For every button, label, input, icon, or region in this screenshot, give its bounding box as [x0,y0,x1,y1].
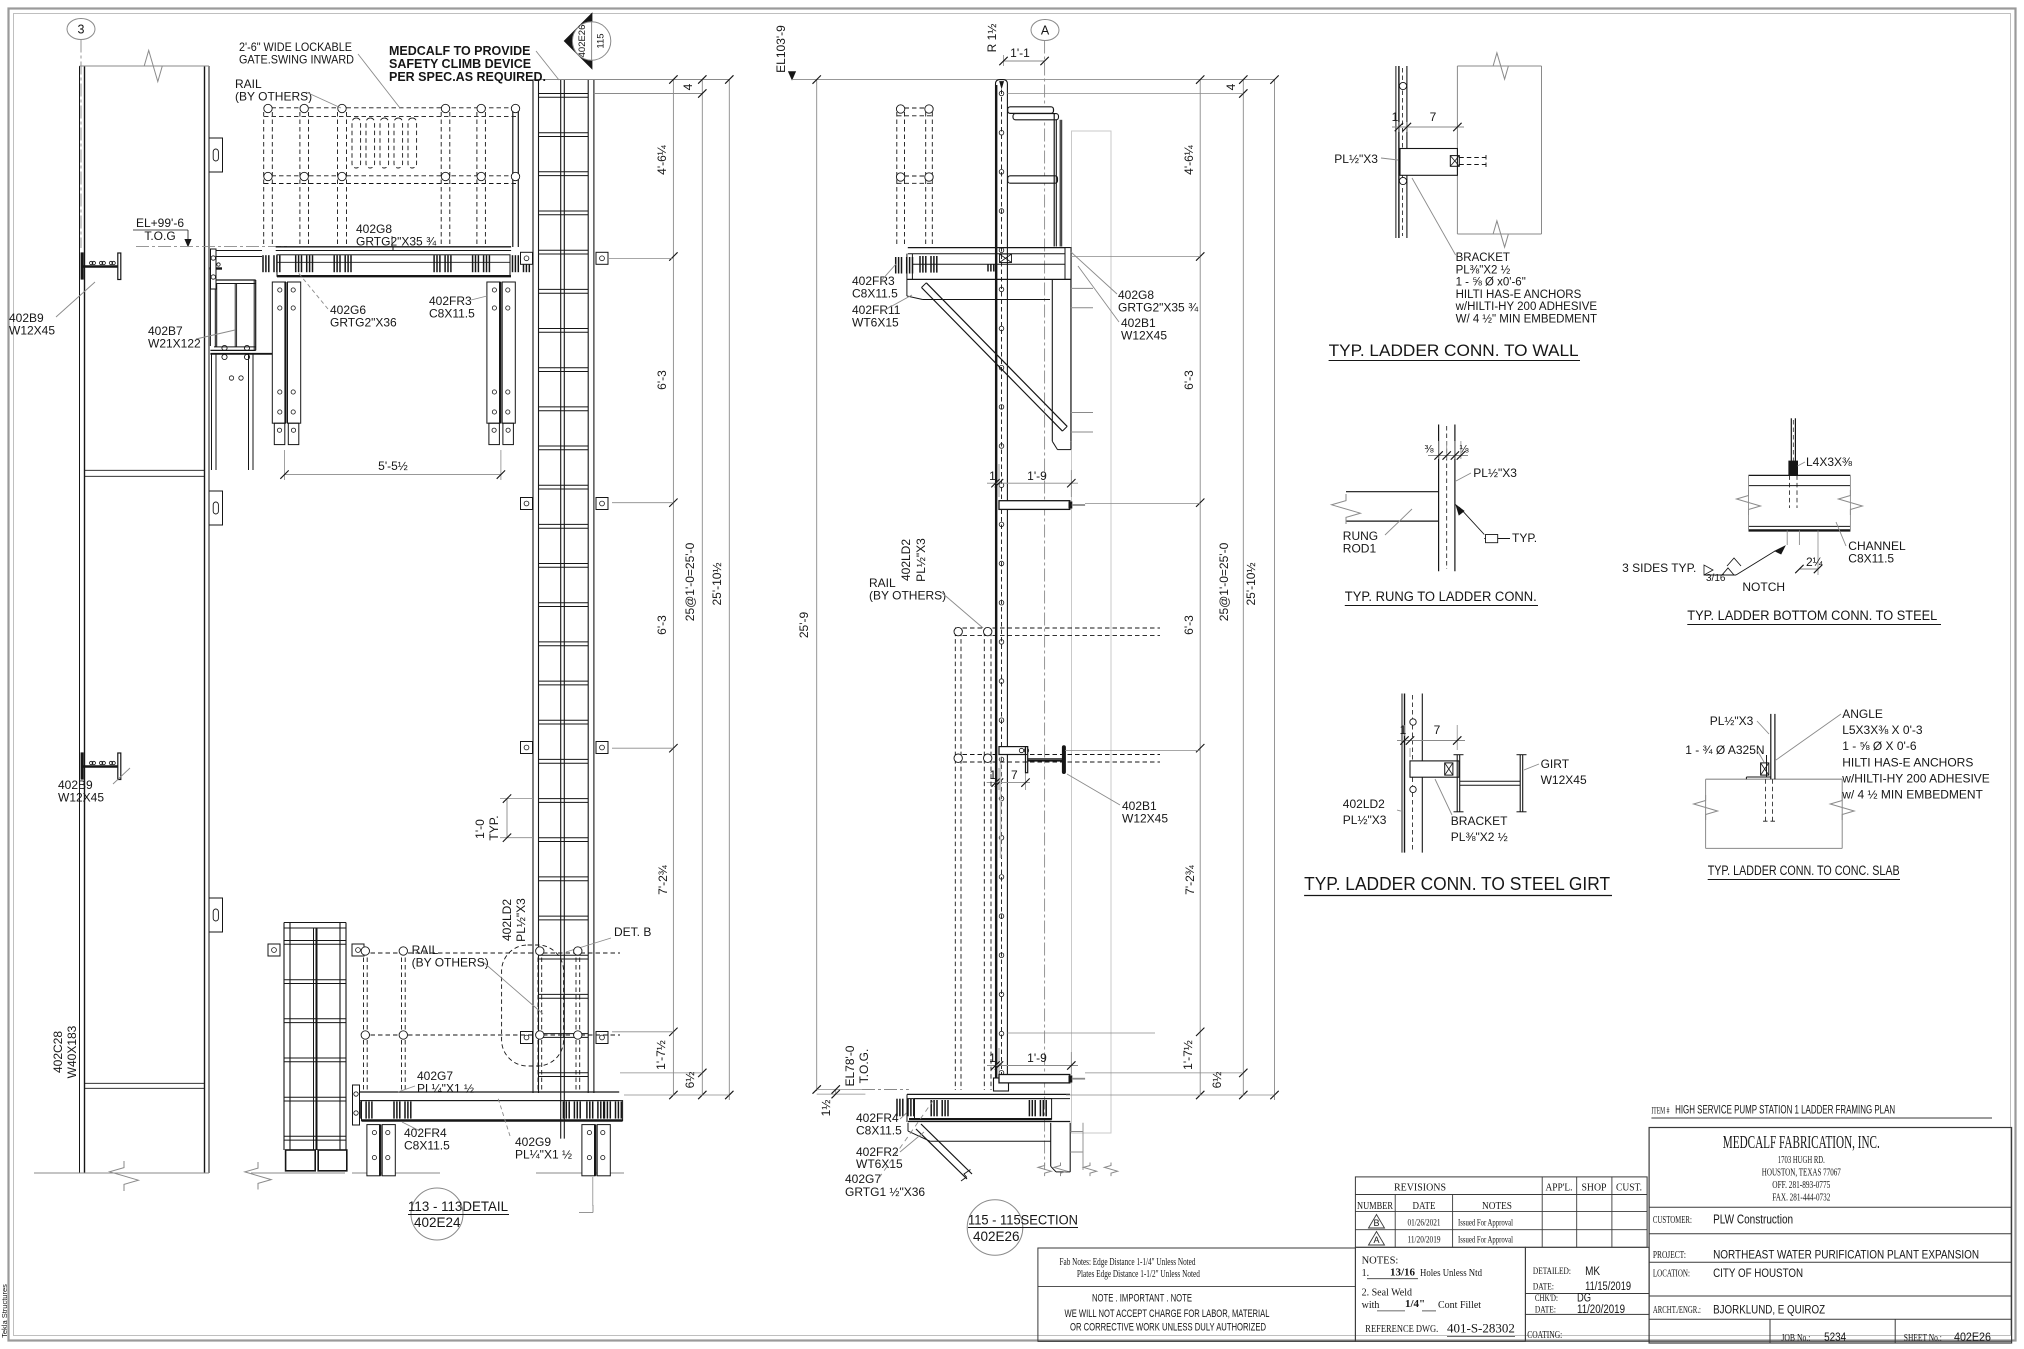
svg-text:JOB No.:: JOB No.: [1781,1333,1810,1344]
svg-text:OR CORRECTIVE WORK UNLESS DULY: OR CORRECTIVE WORK UNLESS DULY AUTHORIZE… [1070,1322,1266,1334]
svg-text:1'-1: 1'-1 [1010,46,1030,60]
svg-text:GRTG2"X35 ¾: GRTG2"X35 ¾ [356,235,437,249]
svg-text:402LD2: 402LD2 [500,899,514,941]
svg-text:HILTI HAS-E ANCHORS: HILTI HAS-E ANCHORS [1842,755,1973,769]
svg-text:CITY OF HOUSTON: CITY OF HOUSTON [1713,1266,1803,1280]
svg-text:W40X183: W40X183 [65,1025,79,1078]
svg-text:HIGH SERVICE PUMP STATION 1 LA: HIGH SERVICE PUMP STATION 1 LADDER FRAMI… [1675,1105,1895,1117]
svg-text:WT6X15: WT6X15 [852,316,899,330]
svg-text:Plates Edge Distance 1-1/2" Un: Plates Edge Distance 1-1/2" Unless Noted [1077,1269,1200,1280]
svg-text:ROD1: ROD1 [1343,542,1377,556]
svg-text:SAFETY CLIMB DEVICE: SAFETY CLIMB DEVICE [389,57,531,71]
svg-text:5234: 5234 [1824,1330,1846,1344]
svg-text:4: 4 [1224,83,1238,90]
svg-text:7: 7 [1011,768,1018,782]
svg-text:13/16: 13/16 [1390,1267,1416,1279]
svg-text:⅛: ⅛ [1459,444,1469,456]
svg-text:DATE:: DATE: [1533,1283,1554,1293]
svg-text:NORTHEAST WATER PURIFICATION P: NORTHEAST WATER PURIFICATION PLANT EXPAN… [1713,1248,1979,1262]
svg-text:01/26/2021: 01/26/2021 [1408,1219,1441,1229]
svg-text:T.O.G.: T.O.G. [857,1049,871,1084]
svg-text:1'-9: 1'-9 [1027,469,1047,483]
svg-text:6½: 6½ [683,1072,697,1089]
svg-text:PL¼"X1 ½: PL¼"X1 ½ [417,1082,474,1096]
svg-text:1: 1 [989,469,996,483]
svg-text:6½: 6½ [1210,1072,1224,1089]
svg-text:L4X3X⅜: L4X3X⅜ [1806,455,1853,469]
svg-text:A: A [1373,1235,1379,1245]
svg-text:11/20/2019: 11/20/2019 [1408,1236,1441,1246]
svg-text:BRACKET: BRACKET [1451,814,1508,828]
svg-text:PROJECT:: PROJECT: [1653,1250,1686,1261]
svg-text:W21X122: W21X122 [148,337,201,351]
svg-text:REVISIONS: REVISIONS [1394,1183,1446,1194]
svg-text:115 - 115SECTION: 115 - 115SECTION [968,1213,1078,1228]
svg-text:3: 3 [78,23,85,37]
svg-text:OFF. 281-893-0775: OFF. 281-893-0775 [1772,1180,1830,1191]
svg-text:25@1'-0=25'-0: 25@1'-0=25'-0 [1217,542,1231,621]
svg-text:TYP. LADDER CONN. TO STEEL GIR: TYP. LADDER CONN. TO STEEL GIRT [1304,874,1610,894]
svg-text:C8X11.5: C8X11.5 [429,307,475,321]
svg-text:402E24: 402E24 [414,1215,461,1230]
svg-text:402LD2: 402LD2 [899,539,913,581]
svg-text:WE WILL NOT ACCEPT CHARGE FOR: WE WILL NOT ACCEPT CHARGE FOR LABOR, MAT… [1065,1308,1270,1320]
svg-text:6'-3: 6'-3 [655,370,669,390]
svg-text:NUMBER: NUMBER [1357,1201,1393,1212]
svg-text:2¼: 2¼ [1806,555,1824,569]
svg-text:CUST.: CUST. [1616,1183,1642,1194]
svg-text:ITEM #: ITEM # [1651,1106,1669,1116]
svg-text:L5X3X⅜ X 0'-3: L5X3X⅜ X 0'-3 [1842,723,1923,737]
svg-text:NOTES: NOTES [1482,1201,1512,1212]
svg-text:DETAILED:: DETAILED: [1533,1267,1571,1277]
svg-text:7'-2¾: 7'-2¾ [656,864,670,895]
svg-text:1'-0: 1'-0 [473,819,487,839]
svg-text:ARCHT./ENGR.:: ARCHT./ENGR.: [1653,1305,1701,1316]
svg-text:CUSTOMER:: CUSTOMER: [1653,1215,1692,1226]
svg-text:w/HILTI-HY 200 ADHESIVE: w/HILTI-HY 200 ADHESIVE [1455,301,1598,313]
svg-text:GRTG1 ½"X36: GRTG1 ½"X36 [845,1185,925,1199]
svg-text:25'-10½: 25'-10½ [1244,563,1258,606]
svg-text:7: 7 [1430,110,1437,124]
svg-text:(BY OTHERS): (BY OTHERS) [235,90,312,104]
svg-text:2. Seal Weld: 2. Seal Weld [1362,1288,1412,1299]
svg-text:MK: MK [1585,1266,1600,1278]
svg-text:PL⅜"X2 ½: PL⅜"X2 ½ [1451,830,1508,844]
svg-text:GRTG2"X35 ¾: GRTG2"X35 ¾ [1118,301,1199,315]
svg-text:MEDCALF TO PROVIDE: MEDCALF TO PROVIDE [389,44,530,58]
svg-text:C8X11.5: C8X11.5 [852,287,898,301]
svg-text:GRTG2"X36: GRTG2"X36 [330,316,397,330]
svg-text:DG: DG [1577,1293,1591,1305]
svg-text:PL½"X3: PL½"X3 [1473,466,1517,480]
svg-text:W12X45: W12X45 [1121,329,1167,343]
svg-text:3/16: 3/16 [1706,573,1726,584]
svg-text:1: 1 [1400,723,1407,737]
svg-text:25@1'-0=25'-0: 25@1'-0=25'-0 [683,542,697,621]
svg-text:1'-7½: 1'-7½ [1181,1040,1195,1070]
svg-text:7'-2¾: 7'-2¾ [1183,864,1197,895]
svg-text:1 - ⅝ Ø x0'-6": 1 - ⅝ Ø x0'-6" [1456,277,1526,289]
svg-text:7: 7 [1434,723,1441,737]
svg-text:25'-10½: 25'-10½ [710,563,724,606]
svg-text:Issued For Approval: Issued For Approval [1458,1236,1513,1246]
svg-text:C8X11.5: C8X11.5 [404,1139,450,1153]
svg-text:PL½"X3: PL½"X3 [1334,152,1378,166]
svg-text:W12X45: W12X45 [9,324,55,338]
svg-text:Cont Fillet: Cont Fillet [1438,1300,1481,1311]
svg-text:TYP. LADDER BOTTOM CONN. TO ST: TYP. LADDER BOTTOM CONN. TO STEEL [1687,608,1937,623]
svg-text:HILTI HAS-E ANCHORS: HILTI HAS-E ANCHORS [1456,289,1582,301]
svg-text:APP'L.: APP'L. [1546,1183,1573,1194]
svg-text:1: 1 [989,768,996,782]
svg-text:25'-9: 25'-9 [797,612,811,639]
svg-text:Issued For Approval: Issued For Approval [1458,1219,1513,1229]
svg-text:EL103'-9: EL103'-9 [774,25,788,73]
svg-text:SHOP: SHOP [1582,1183,1607,1194]
svg-text:TYP. LADDER CONN. TO WALL: TYP. LADDER CONN. TO WALL [1329,342,1579,360]
svg-text:C8X11.5: C8X11.5 [1848,552,1894,566]
svg-text:WT6X15: WT6X15 [856,1157,903,1171]
svg-text:HOUSTON, TEXAS 77067: HOUSTON, TEXAS 77067 [1762,1168,1841,1179]
svg-text:SHEET No.:: SHEET No.: [1904,1333,1942,1344]
svg-text:DET. B: DET. B [614,925,651,939]
svg-text:Fab Notes: Edge Distance 1-1/4: Fab Notes: Edge Distance 1-1/4" Unless N… [1060,1257,1196,1268]
svg-text:1'-9: 1'-9 [1027,1051,1047,1065]
svg-text:PL¼"X1 ½: PL¼"X1 ½ [515,1148,572,1162]
svg-text:1: 1 [1392,110,1399,124]
svg-text:PL⅜"X2 ½: PL⅜"X2 ½ [1456,264,1511,276]
svg-text:6'-3: 6'-3 [655,615,669,635]
svg-text:1.: 1. [1362,1268,1370,1279]
svg-text:401-S-28302: 401-S-28302 [1447,1321,1515,1336]
svg-text:COATING:: COATING: [1527,1330,1562,1341]
svg-text:R 1½: R 1½ [985,24,999,53]
svg-text:ANGLE: ANGLE [1842,707,1883,721]
svg-text:6'-3: 6'-3 [1182,615,1196,635]
svg-text:W12X45: W12X45 [1541,773,1587,787]
svg-text:11/15/2019: 11/15/2019 [1585,1281,1631,1293]
svg-text:LOCATION:: LOCATION: [1653,1269,1690,1280]
svg-text:1½: 1½ [819,1100,833,1117]
svg-text:PL½"X3: PL½"X3 [1343,813,1387,827]
svg-text:B: B [1373,1218,1379,1228]
svg-text:W12X45: W12X45 [58,791,104,805]
svg-text:6'-3: 6'-3 [1182,370,1196,390]
svg-text:EL+99'-6: EL+99'-6 [136,216,184,230]
svg-text:⅜: ⅜ [1424,444,1434,456]
svg-text:4'-6¼: 4'-6¼ [1182,144,1196,175]
svg-text:402E26: 402E26 [973,1229,1020,1244]
svg-text:BRACKET: BRACKET [1456,252,1510,264]
svg-text:Tekla Structures: Tekla Structures [0,1284,9,1338]
svg-text:GIRT: GIRT [1541,757,1570,771]
svg-text:5'-5½: 5'-5½ [378,459,408,473]
svg-text:TYP.: TYP. [1512,531,1537,545]
svg-text:11/20/2019: 11/20/2019 [1577,1304,1625,1316]
svg-text:1703 HUGH RD.: 1703 HUGH RD. [1778,1155,1825,1166]
svg-text:W12X45: W12X45 [1122,812,1168,826]
svg-text:NOTCH: NOTCH [1742,580,1785,594]
svg-text:PL½"X3: PL½"X3 [514,898,528,942]
svg-text:A: A [1041,24,1050,38]
svg-text:FAX. 281-444-0732: FAX. 281-444-0732 [1772,1193,1830,1204]
svg-text:402C28: 402C28 [51,1031,65,1073]
svg-text:4'-6¼: 4'-6¼ [655,144,669,175]
svg-text:DATE: DATE [1413,1201,1436,1212]
svg-text:TYP.: TYP. [487,815,501,840]
svg-text:T.O.G: T.O.G [144,229,175,243]
svg-text:MEDCALF FABRICATION, INC.: MEDCALF FABRICATION, INC. [1723,1132,1880,1152]
svg-text:DATE:: DATE: [1535,1306,1556,1316]
svg-text:PLW Construction: PLW Construction [1713,1213,1793,1227]
svg-text:(BY OTHERS): (BY OTHERS) [412,956,489,970]
svg-text:402LD2: 402LD2 [1343,797,1385,811]
svg-text:w/ 4 ½ MIN EMBEDMENT: w/ 4 ½ MIN EMBEDMENT [1841,788,1983,802]
svg-text:113 - 113DETAIL: 113 - 113DETAIL [408,1199,508,1214]
svg-text:1/4": 1/4" [1405,1298,1425,1310]
svg-text:PER SPEC.AS REQUIRED.: PER SPEC.AS REQUIRED. [389,70,546,84]
svg-text:PL½"X3: PL½"X3 [1710,714,1754,728]
svg-text:402E26: 402E26 [1954,1330,1991,1344]
svg-text:NOTES:: NOTES: [1362,1256,1399,1267]
svg-text:EL78'-0: EL78'-0 [843,1045,857,1086]
svg-text:CHK'D:: CHK'D: [1535,1294,1558,1304]
svg-text:TYP. LADDER CONN. TO CONC. SLA: TYP. LADDER CONN. TO CONC. SLAB [1708,863,1900,878]
svg-text:BJORKLUND, E QUIROZ: BJORKLUND, E QUIROZ [1713,1303,1825,1317]
svg-text:3 SIDES TYP.: 3 SIDES TYP. [1622,561,1696,575]
svg-text:4: 4 [681,83,695,90]
svg-text:GATE.SWING INWARD: GATE.SWING INWARD [239,53,354,67]
svg-text:W/ 4 ½" MIN EMBEDMENT: W/ 4 ½" MIN EMBEDMENT [1456,314,1597,326]
svg-text:C8X11.5: C8X11.5 [856,1124,902,1138]
svg-text:TYP. RUNG TO LADDER CONN.: TYP. RUNG TO LADDER CONN. [1345,589,1537,604]
svg-text:NOTE . IMPORTANT . NOTE: NOTE . IMPORTANT . NOTE [1092,1293,1192,1305]
svg-text:w/HILTI-HY 200 ADHESIVE: w/HILTI-HY 200 ADHESIVE [1841,771,1990,785]
svg-text:402E26: 402E26 [577,25,588,58]
svg-text:REFERENCE DWG.: REFERENCE DWG. [1365,1324,1438,1335]
svg-text:(BY OTHERS): (BY OTHERS) [869,589,946,603]
svg-text:1 - ¾ Ø A325N: 1 - ¾ Ø A325N [1685,743,1764,757]
svg-text:Holes Unless Ntd: Holes Unless Ntd [1420,1268,1482,1279]
svg-text:PL½"X3: PL½"X3 [914,538,928,582]
svg-text:with: with [1362,1300,1380,1311]
svg-text:1'-7½: 1'-7½ [654,1040,668,1070]
svg-text:402G7: 402G7 [845,1172,881,1186]
svg-text:1 - ⅝ Ø X 0'-6: 1 - ⅝ Ø X 0'-6 [1842,739,1917,753]
svg-text:115: 115 [596,33,607,48]
svg-text:1: 1 [989,1051,996,1065]
